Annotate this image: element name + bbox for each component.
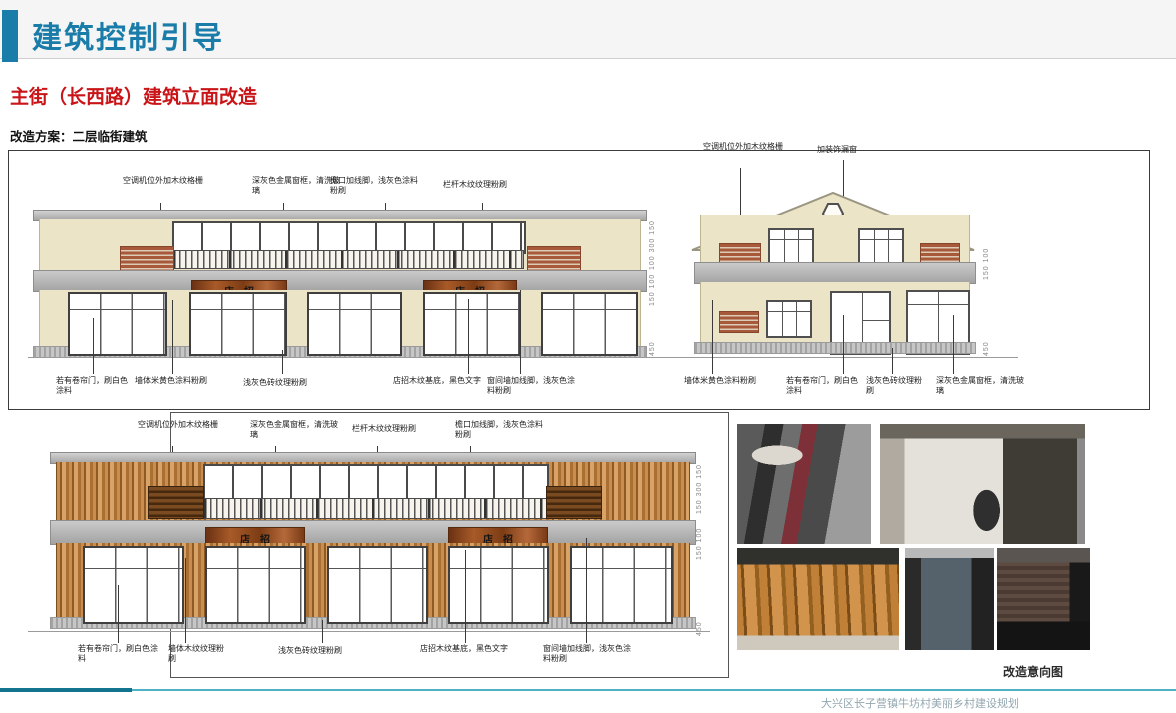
photo-street-scene xyxy=(737,424,871,544)
annotation-cornice: 檐口加线脚，浅灰色涂料粉刷 xyxy=(330,176,425,196)
scheme-label: 改造方案：二层临街建筑 xyxy=(10,126,148,145)
page-title: 建筑控制引导 xyxy=(32,13,224,57)
annotation-gray-brick: 浅灰色砖纹理粉刷 xyxy=(866,376,928,396)
dimension-label: 100 300 150 xyxy=(649,212,656,270)
window xyxy=(768,228,814,265)
leader-line xyxy=(712,300,713,374)
annotation-beige-wall: 墙体米黄色涂料粉刷 xyxy=(135,376,215,386)
leader-line xyxy=(892,348,893,374)
annotation-lattice-window: 加装饰漏窗 xyxy=(817,145,887,155)
dimension-label: 450 xyxy=(649,320,656,356)
floor-band xyxy=(694,262,976,284)
leader-line xyxy=(586,538,587,643)
footer-rule xyxy=(0,689,1176,691)
photo-wood-shopfront xyxy=(737,548,899,650)
section-title: 主街（长西路）建筑立面改造 xyxy=(10,82,257,109)
leader-line xyxy=(468,299,469,374)
annotation-railing: 栏杆木纹纹理粉刷 xyxy=(352,424,457,434)
window xyxy=(766,300,812,338)
storefront xyxy=(541,292,638,356)
annotation-window-pier: 窗间墙加线脚，浅灰色涂料粉刷 xyxy=(487,376,575,396)
photo-white-shopfront-arch xyxy=(880,424,1085,544)
dimension-label: 150 100 xyxy=(983,238,990,280)
leader-line xyxy=(185,558,186,643)
floor-band xyxy=(33,270,647,292)
dimension-label: 150 100 xyxy=(696,518,703,560)
footer-rule-accent xyxy=(0,688,132,692)
ac-grille-left xyxy=(719,243,761,264)
annotation-sign-base: 店招木纹基底，黑色文字 xyxy=(393,376,485,386)
storefront xyxy=(423,292,521,356)
storefront xyxy=(68,292,167,356)
ac-grille-right xyxy=(546,486,602,519)
ac-grille-right xyxy=(920,243,960,264)
ground-line xyxy=(28,357,1018,358)
photos-caption: 改造意向图 xyxy=(1003,663,1063,680)
annotation-cornice: 檐口加线脚，浅灰色涂料粉刷 xyxy=(455,420,550,440)
annotation-window-frame: 深灰色金属窗框，清洗玻璃 xyxy=(250,420,345,440)
dimension-label: 450 xyxy=(696,596,703,636)
leader-line xyxy=(118,585,119,643)
ac-grille-left xyxy=(120,246,174,272)
leader-line xyxy=(282,350,283,374)
leader-line xyxy=(172,300,173,374)
ground-line xyxy=(28,631,710,632)
storefront xyxy=(83,546,184,624)
storefront xyxy=(327,546,428,624)
wall-grille xyxy=(719,311,759,333)
annotation-sign-base: 店招木纹基底，黑色文字 xyxy=(420,644,508,654)
ac-grille-right xyxy=(527,246,581,272)
annotation-ac-grille: 空调机位外加木纹格栅 xyxy=(138,420,223,430)
ac-grille-left xyxy=(148,486,204,519)
annotation-ac-grille: 空调机位外加木纹格栅 xyxy=(123,176,205,186)
storefront xyxy=(448,546,549,624)
balustrade xyxy=(203,498,547,519)
leader-line xyxy=(465,550,466,643)
annotation-window-pier: 窗间墙加线脚，浅灰色涂料粉刷 xyxy=(543,644,635,664)
dimension-label: 150 300 150 xyxy=(696,452,703,514)
slide: 建筑控制引导 主街（长西路）建筑立面改造 改造方案：二层临街建筑 空调机位外加木… xyxy=(0,0,1176,713)
annotation-gray-brick: 浅灰色砖纹理粉刷 xyxy=(243,378,338,388)
annotation-roller-door: 若有卷帘门，刷白色涂料 xyxy=(786,376,864,396)
leader-line xyxy=(520,290,521,374)
footer-text: 大兴区长子营镇牛坊村美丽乡村建设规划 xyxy=(790,695,1050,711)
leader-line xyxy=(322,620,323,643)
annotation-ac-grille: 空调机位外加木纹格栅 xyxy=(703,142,783,152)
annotation-roller-door: 若有卷帘门，刷白色涂料 xyxy=(56,376,134,396)
leader-line xyxy=(843,315,844,374)
leader-line xyxy=(953,315,954,374)
storefront xyxy=(189,292,287,356)
annotation-window-frame: 深灰色金属窗框，清洗玻璃 xyxy=(936,376,1024,396)
upper-window-band xyxy=(203,464,549,502)
annotation-wood-wall: 墙体木纹纹理粉刷 xyxy=(168,644,230,664)
plinth xyxy=(694,342,976,354)
storefront xyxy=(307,292,402,356)
annotation-railing: 栏杆木纹纹理粉刷 xyxy=(443,180,553,190)
annotation-gray-brick: 浅灰色砖纹理粉刷 xyxy=(278,646,373,656)
window xyxy=(858,228,904,265)
storefront xyxy=(205,546,306,624)
dimension-label: 150 100 xyxy=(649,264,656,306)
balustrade xyxy=(172,250,524,269)
annotation-beige-wall: 墙体米黄色涂料粉刷 xyxy=(684,376,764,386)
floor-band xyxy=(50,520,696,545)
dimension-label: 450 xyxy=(983,320,990,356)
photo-brick-shopfront xyxy=(997,548,1090,650)
header-accent-square xyxy=(2,10,18,62)
leader-line xyxy=(93,318,94,374)
annotation-roller-door: 若有卷帘门，刷白色涂料 xyxy=(78,644,158,664)
photo-dark-glass-storefront xyxy=(905,548,994,650)
